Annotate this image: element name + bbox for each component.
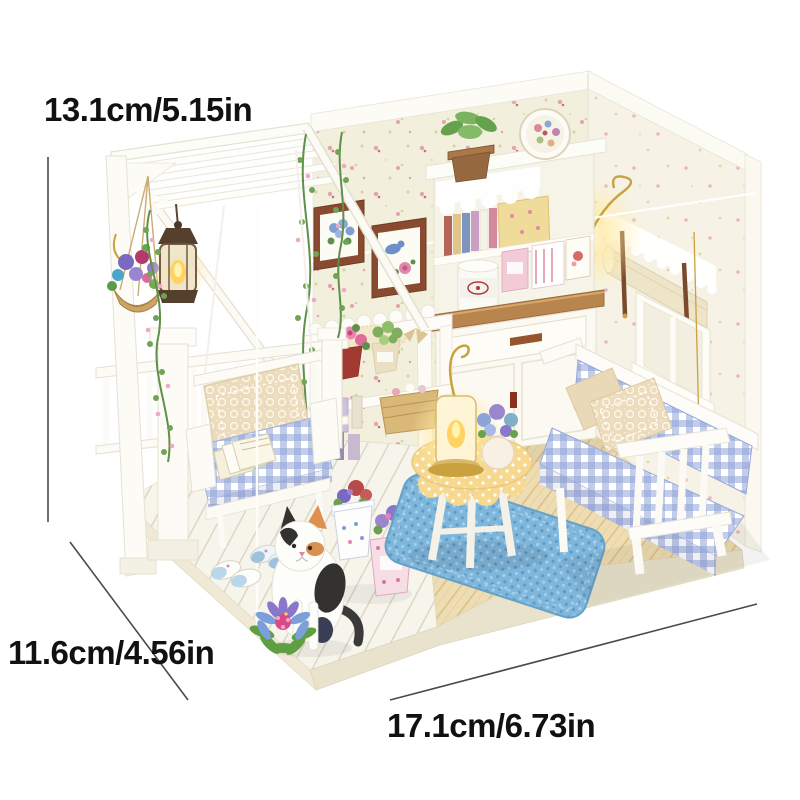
storage-tin <box>458 260 498 310</box>
dollhouse-product-image: 13.1cm/5.15in 11.6cm/4.56in 17.1cm/6.73i… <box>0 0 800 800</box>
depth-label: 11.6cm/4.56in <box>8 634 214 671</box>
width-label: 17.1cm/6.73in <box>387 707 595 744</box>
height-label: 13.1cm/5.15in <box>44 91 252 128</box>
flower-vase <box>477 404 518 469</box>
decorative-plate <box>520 109 570 159</box>
dollhouse-illustration: 13.1cm/5.15in 11.6cm/4.56in 17.1cm/6.73i… <box>0 0 800 800</box>
